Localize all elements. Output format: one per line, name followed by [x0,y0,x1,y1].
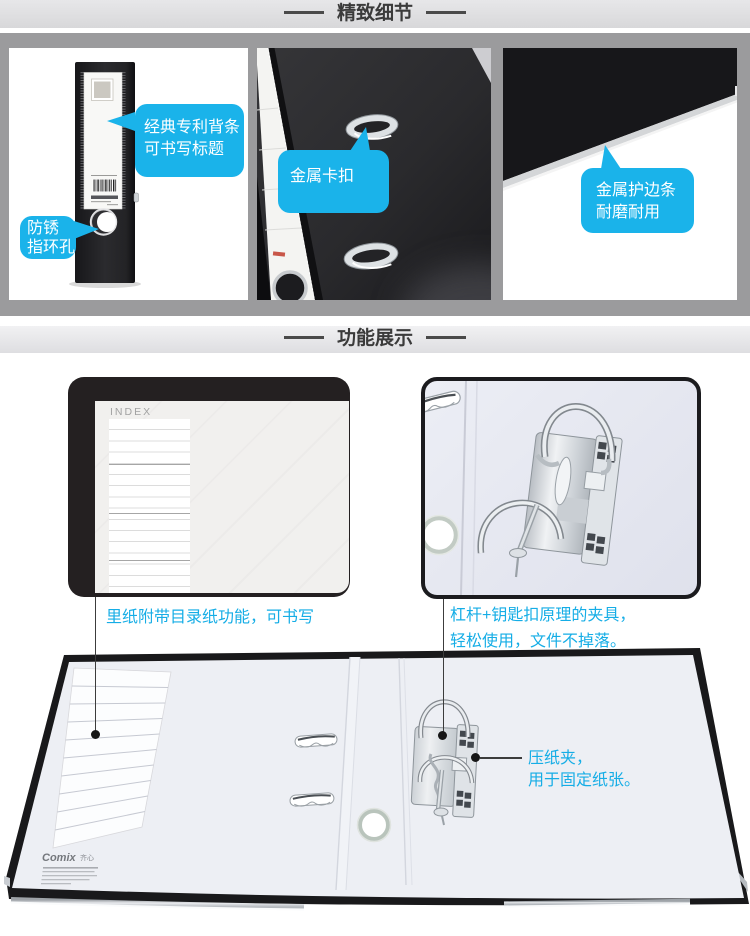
svg-text:齐心: 齐心 [80,853,94,862]
svg-text:Comix: Comix [42,852,77,864]
